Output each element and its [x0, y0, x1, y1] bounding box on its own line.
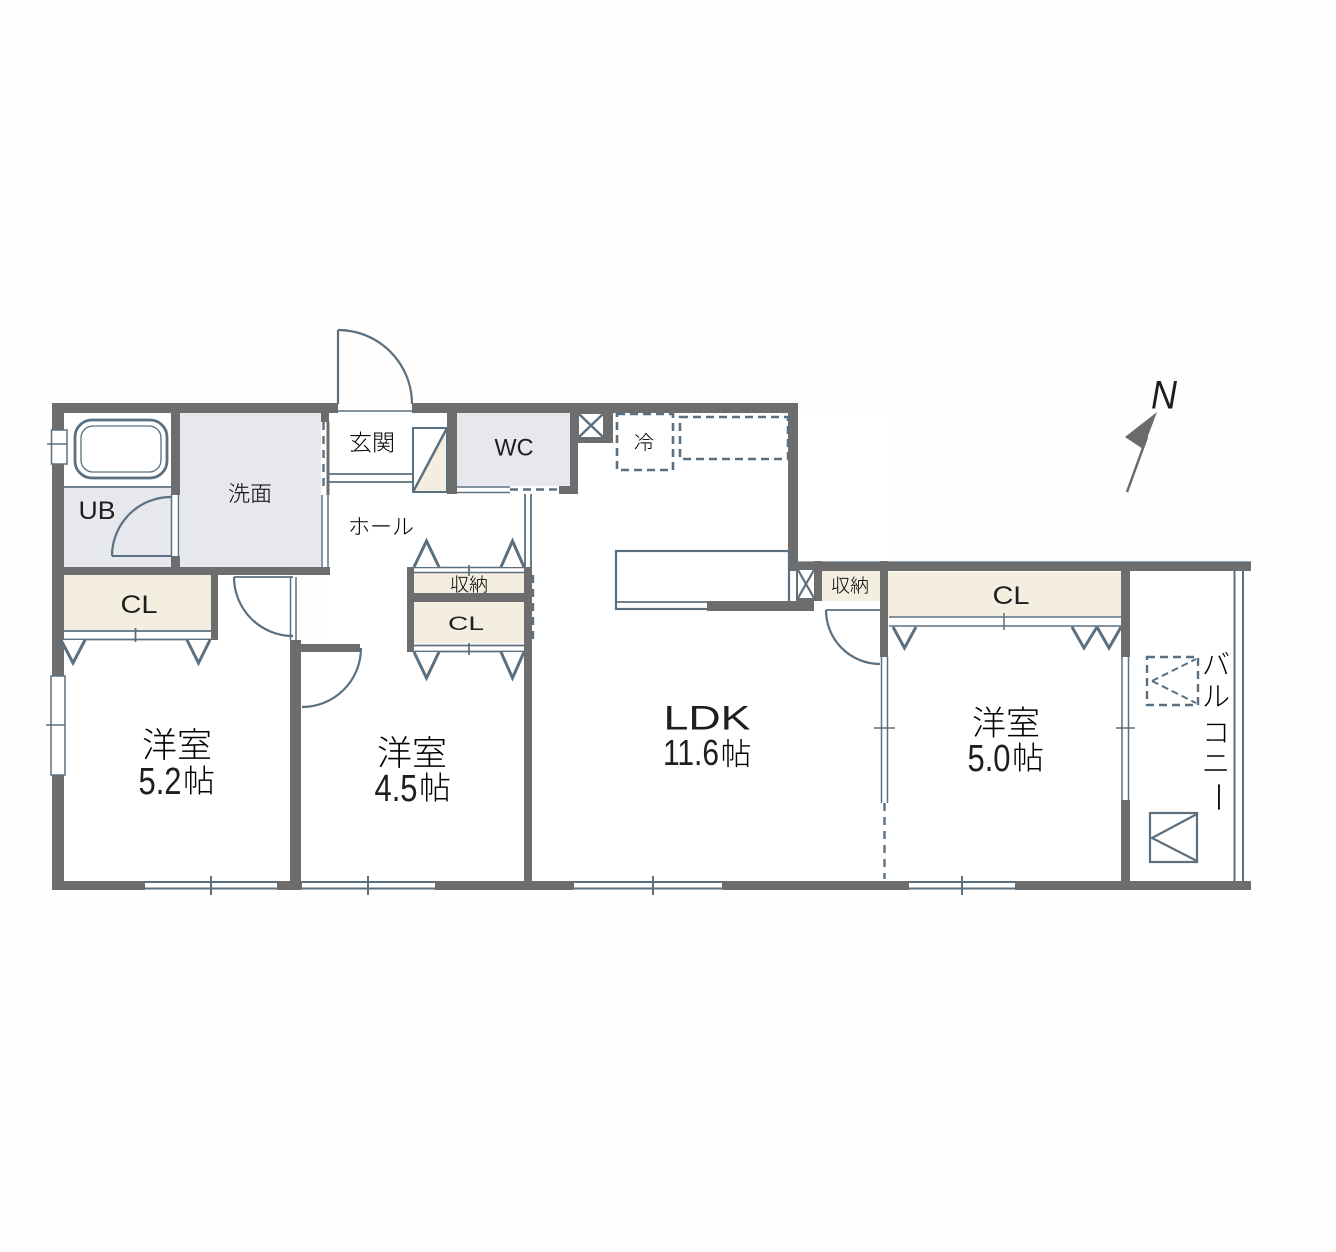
svg-text:CL: CL: [121, 591, 158, 619]
svg-text:CL: CL: [993, 582, 1030, 610]
svg-text:WC: WC: [495, 435, 534, 462]
svg-text:11.6: 11.6: [663, 732, 719, 773]
svg-text:5.0: 5.0: [968, 738, 1011, 780]
svg-text:UB: UB: [79, 497, 116, 525]
svg-text:5.2: 5.2: [139, 761, 182, 803]
svg-text:CL: CL: [448, 614, 484, 635]
svg-text:4.5: 4.5: [375, 768, 418, 810]
svg-text:N: N: [1151, 374, 1177, 418]
